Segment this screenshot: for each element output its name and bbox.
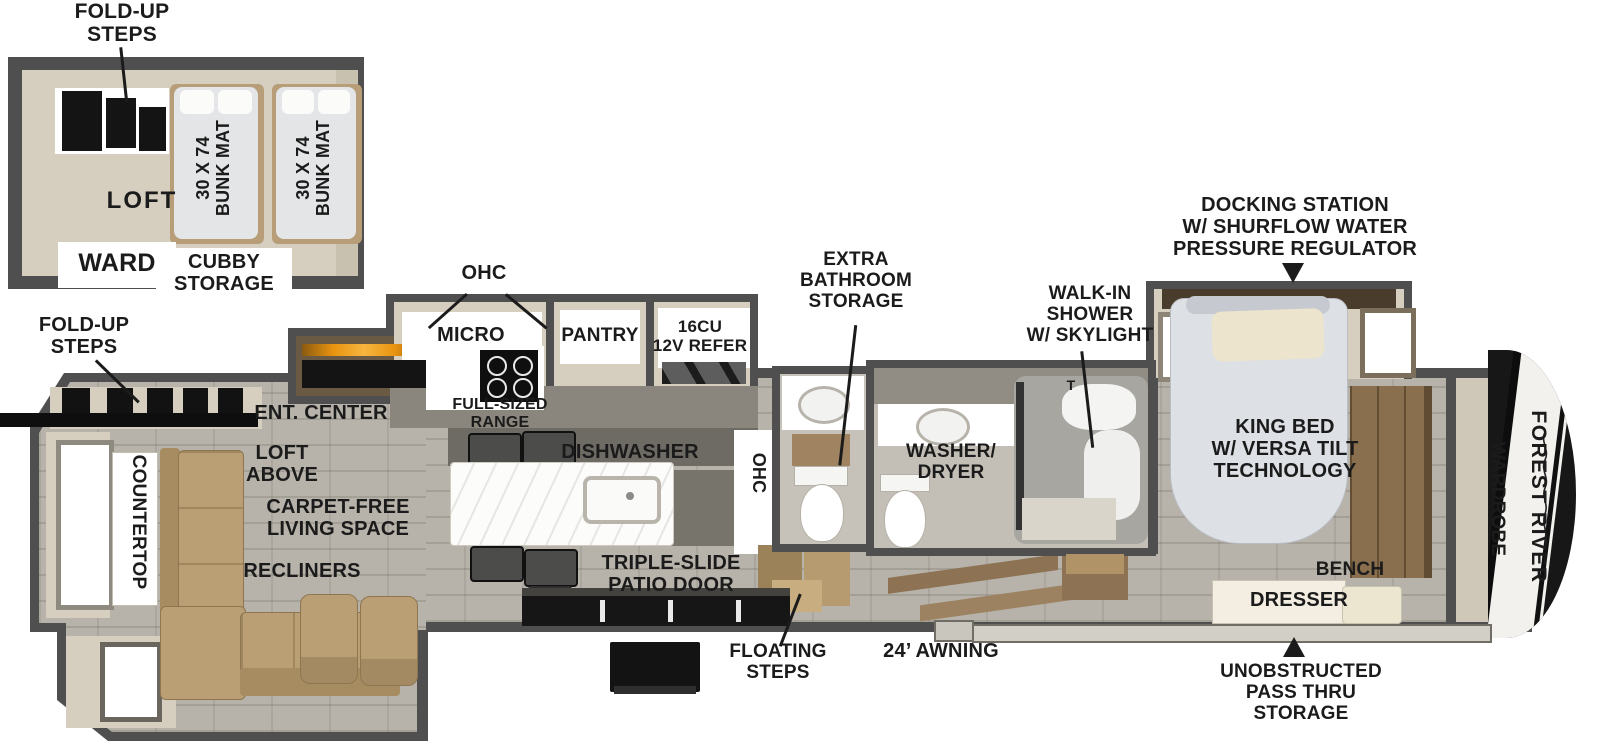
dishwasher-label: DISHWASHER: [558, 441, 702, 463]
micro-label: MICRO: [416, 324, 526, 346]
fold-steps-rail: [0, 413, 258, 427]
extra-bathroom-storage-callout: EXTRA BATHROOM STORAGE: [782, 250, 930, 313]
walk-in-shower-callout: WALK-IN SHOWER W/ SKYLIGHT: [1008, 284, 1172, 347]
chair-3: [470, 546, 524, 582]
awning-label: 24’ AWNING: [866, 640, 1016, 662]
loft-label: LOFT: [96, 188, 188, 214]
shower-shelf: [1022, 498, 1116, 540]
cubby-storage-label: CUBBY STORAGE: [156, 251, 292, 295]
recliner-1: [300, 594, 358, 684]
living-left-window: [56, 440, 114, 610]
recliner-2: [360, 596, 418, 686]
half-bath-toilet-tank: [794, 466, 848, 486]
loft-step-1: [62, 91, 102, 151]
ent-center-label: ENT. CENTER: [238, 402, 404, 424]
dresser-label: DRESSER: [1232, 589, 1366, 611]
burner-4: [513, 378, 533, 398]
loft-step-3: [139, 107, 166, 151]
burner-1: [487, 356, 507, 376]
living-slide-right-wall: [417, 630, 428, 741]
pass-thru-arrow: [1283, 637, 1305, 657]
bunk-left-label: 30 X 74 BUNK MAT: [194, 108, 238, 228]
bedroom-closet-edge: [1424, 386, 1432, 578]
bedroom-divider-wall: [1148, 378, 1158, 554]
wardrobe-label: WARDROBE: [1481, 429, 1507, 569]
wardrobe-divider-wall: [1446, 378, 1456, 632]
brand-label: FOREST RIVER: [1524, 382, 1550, 612]
refer-lower-band: [662, 362, 746, 384]
awning-roller: [972, 624, 1492, 643]
chair-4: [524, 549, 578, 587]
bedroom-closet: [1350, 386, 1432, 578]
half-bath-basin: [798, 386, 850, 424]
bath-toilet-bowl: [884, 490, 926, 548]
loft-above-label: LOFT ABOVE: [232, 442, 332, 486]
bedroom-window-right: [1360, 308, 1416, 378]
bunk-right-label: 30 X 74 BUNK MAT: [294, 108, 338, 228]
sink-drain: [626, 492, 634, 500]
ohc-top-label: OHC: [452, 262, 516, 284]
half-bath-toilet-bowl: [800, 484, 844, 542]
sofa-corner: [160, 606, 246, 700]
ent-center-tv: [302, 360, 426, 388]
carpet-free-label: CARPET-FREE LIVING SPACE: [250, 496, 426, 540]
king-bed-label: KING BED W/ VERSA TILT TECHNOLOGY: [1192, 416, 1378, 482]
patio-door-slit-1: [600, 600, 605, 622]
patio-door-slit-2: [668, 600, 673, 622]
washer-dryer-label: WASHER/ DRYER: [878, 442, 1024, 484]
king-bed-pillow: [1211, 308, 1325, 362]
living-slide-window: [100, 642, 162, 722]
range-label: FULL-SIZED RANGE: [440, 396, 560, 431]
pass-thru-label: UNOBSTRUCTED PASS THRU STORAGE: [1212, 662, 1390, 725]
main-fold-up-steps-callout: FOLD-UP STEPS: [18, 314, 150, 358]
docking-station-callout: DOCKING STATION W/ SHURFLOW WATER PRESSU…: [1150, 194, 1440, 260]
burner-3: [487, 378, 507, 398]
sofa-chaise-back: [160, 448, 180, 620]
bench-label: BENCH: [1298, 560, 1402, 581]
awning-bracket: [934, 620, 974, 642]
refer-label: 16CU 12V REFER: [640, 318, 760, 355]
shower-head-mark: T: [1062, 378, 1080, 393]
entry-ohc-label: OHC: [742, 428, 768, 518]
entry-step-box: [610, 642, 700, 692]
loft-fold-up-steps-callout: FOLD-UP STEPS: [58, 0, 186, 46]
stair-landing-top: [1066, 554, 1124, 574]
patio-door: [522, 596, 790, 626]
patio-door-slit-3: [736, 600, 741, 622]
rv-floorplan-diagram: 30 X 74 BUNK MAT 30 X 74 BUNK MAT LOFT W…: [0, 0, 1600, 743]
pantry-label: PANTRY: [556, 326, 644, 347]
floating-steps-callout: FLOATING STEPS: [720, 642, 836, 684]
countertop-label: COUNTERTOP: [120, 446, 148, 598]
loft-step-2: [106, 98, 136, 148]
island-sink: [583, 476, 661, 524]
burner-2: [513, 356, 533, 376]
recliners-label: RECLINERS: [238, 560, 366, 582]
docking-station-arrow: [1282, 263, 1304, 283]
patio-door-label: TRIPLE-SLIDE PATIO DOOR: [588, 552, 754, 596]
entry-step-lip: [614, 686, 696, 694]
kitchen-divider-1: [546, 302, 554, 386]
